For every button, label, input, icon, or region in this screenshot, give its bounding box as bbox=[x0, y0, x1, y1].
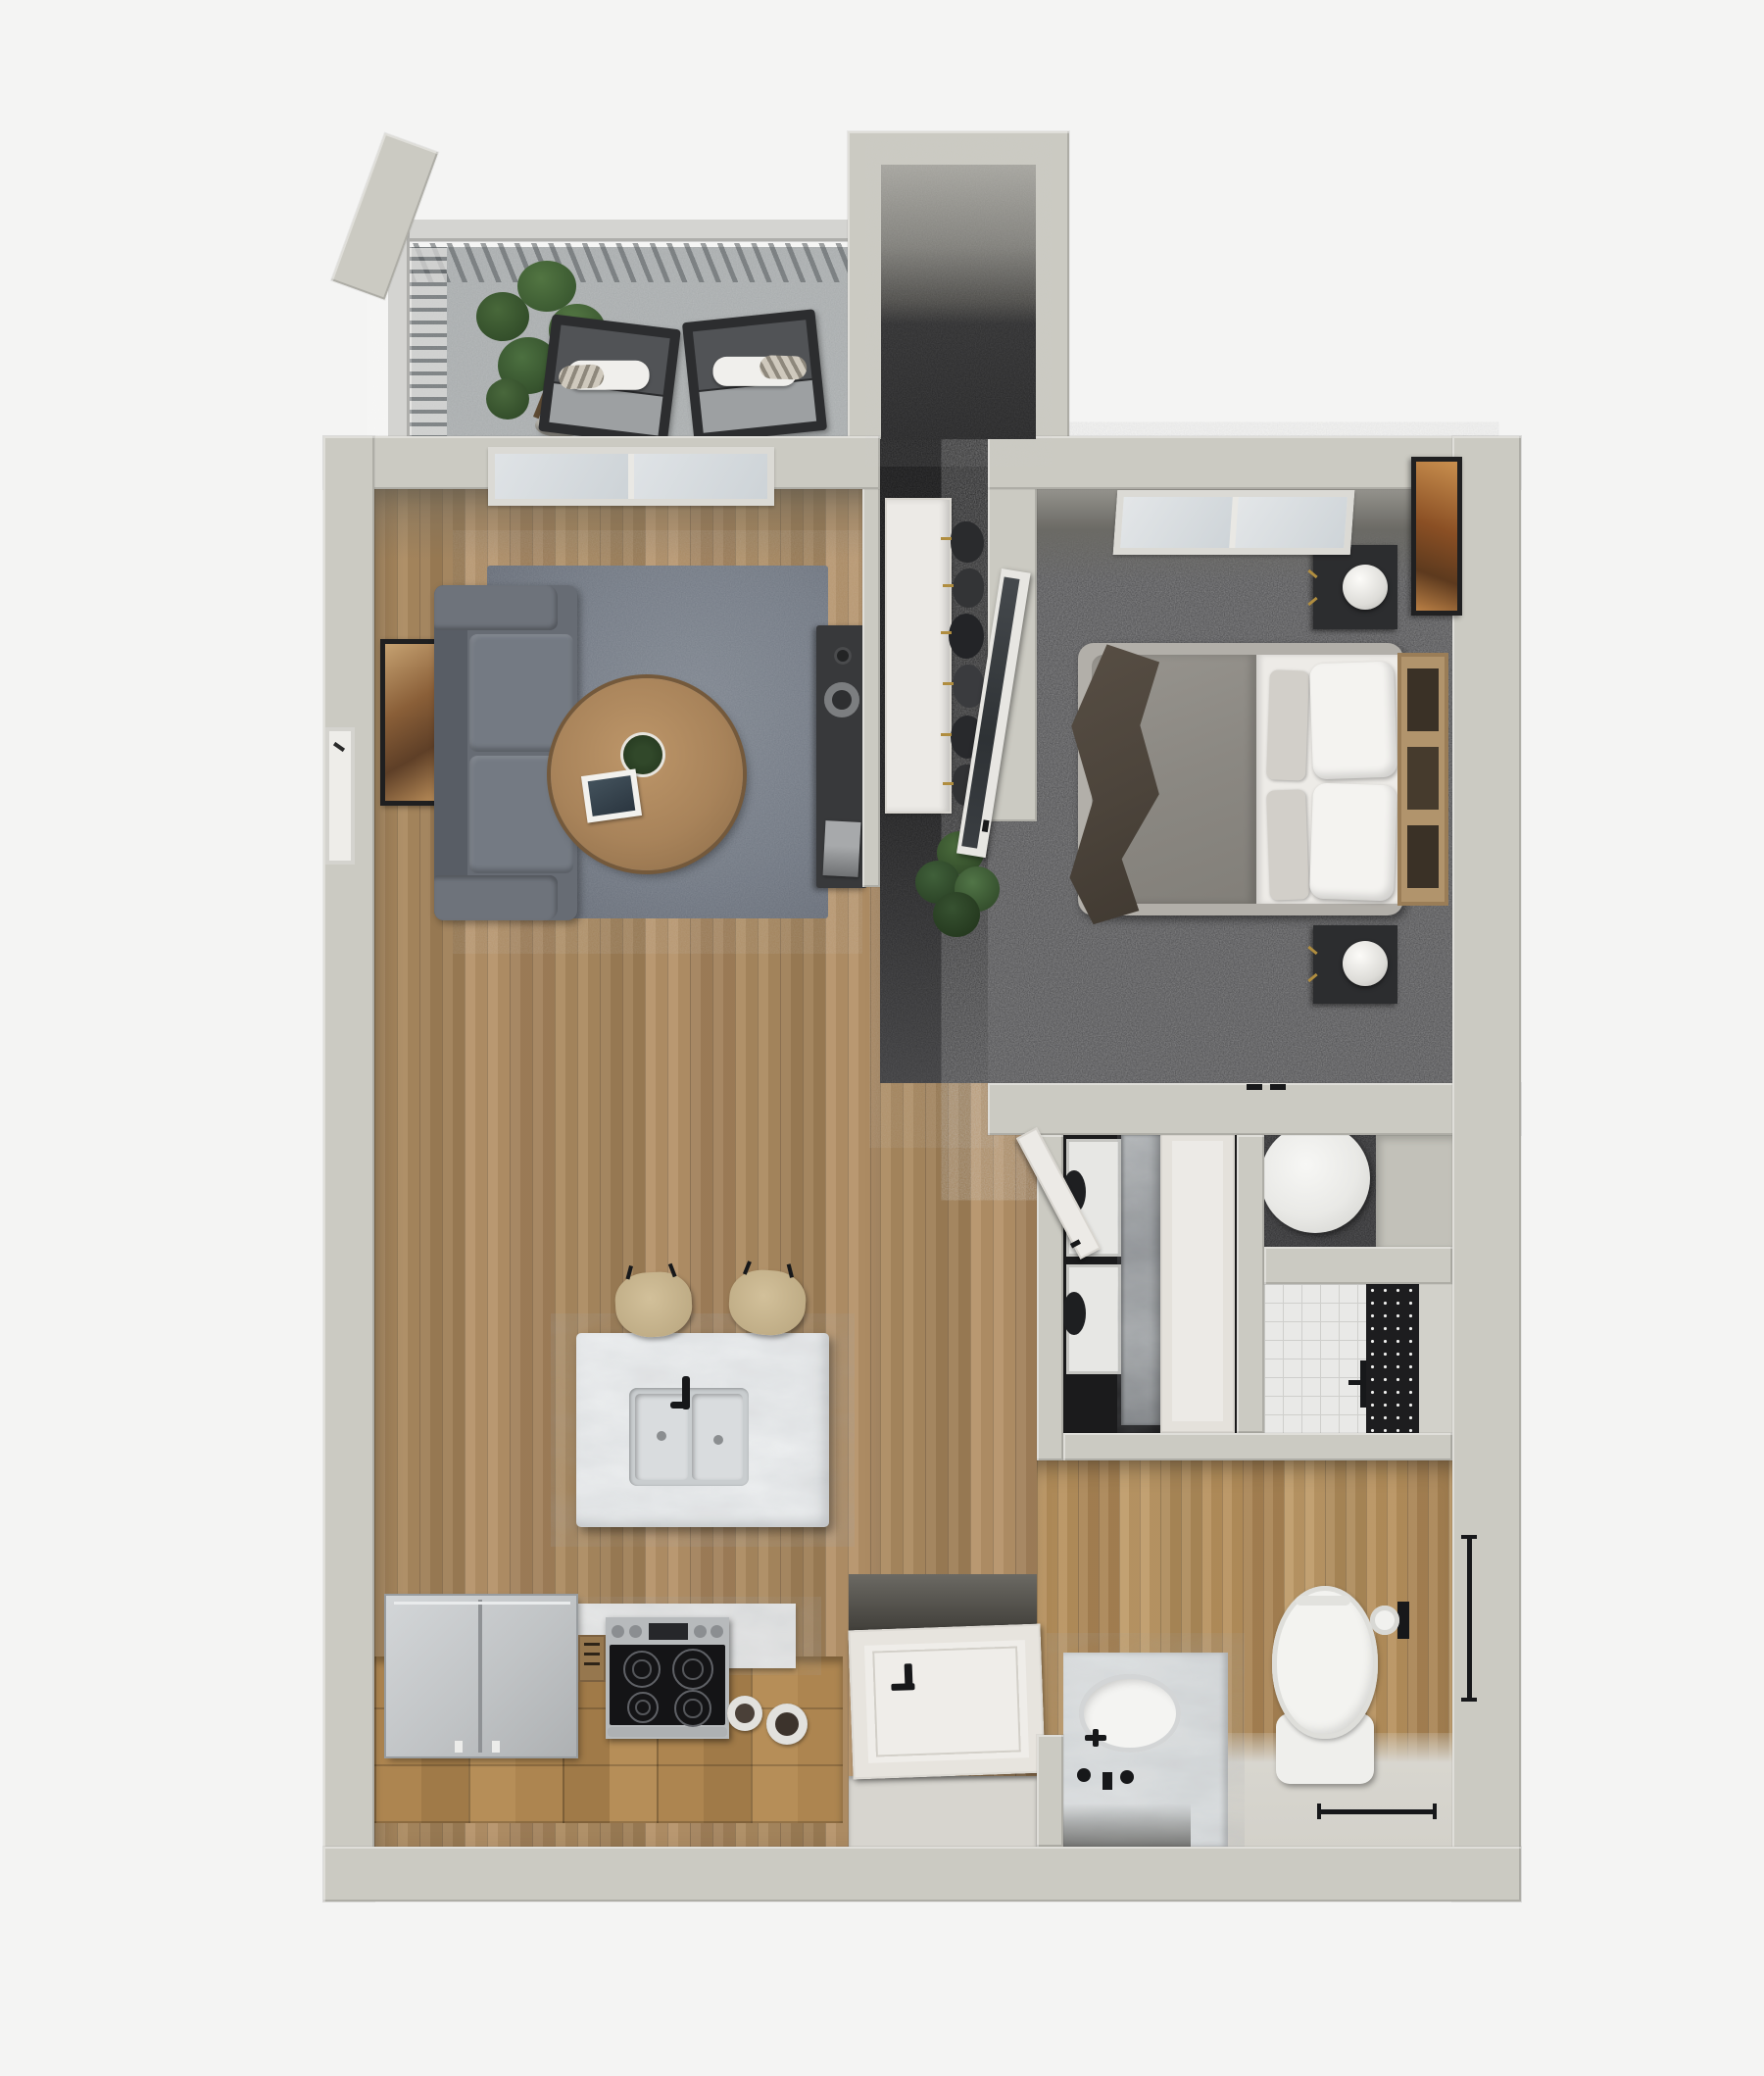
table-plant bbox=[623, 735, 662, 774]
vestibule-interior bbox=[881, 165, 1036, 439]
lounge-chair bbox=[538, 314, 681, 446]
door-stop-marks bbox=[1270, 1084, 1286, 1090]
vanity-faucet bbox=[1093, 1729, 1099, 1747]
wall-below-bedroom bbox=[988, 1083, 1521, 1135]
bathroom-vanity bbox=[1063, 1653, 1228, 1847]
vanity-shadow bbox=[1063, 1804, 1191, 1847]
utility-niche-wall bbox=[1376, 1135, 1452, 1247]
headboard-shelf bbox=[1397, 653, 1448, 906]
sofa-back bbox=[434, 585, 467, 920]
shower-floor bbox=[1264, 1284, 1366, 1433]
bedroom-window bbox=[1113, 490, 1355, 555]
balcony-slats-left bbox=[410, 247, 447, 439]
vanity-accessory bbox=[1102, 1772, 1112, 1790]
console-cup bbox=[834, 647, 852, 665]
dryer bbox=[1066, 1264, 1121, 1374]
stove-display bbox=[649, 1623, 688, 1640]
shower-side-wall bbox=[1419, 1284, 1452, 1433]
lumbar-pillow bbox=[1266, 669, 1309, 780]
entry-door bbox=[848, 1624, 1045, 1780]
left-wall-window bbox=[325, 727, 355, 865]
towel-bar-end bbox=[1461, 1535, 1477, 1539]
stove-knob bbox=[629, 1625, 642, 1638]
towel-bar-vertical bbox=[1467, 1537, 1472, 1700]
towel-bar-horizontal bbox=[1319, 1809, 1435, 1814]
stove-knob bbox=[694, 1625, 707, 1638]
lumbar-pillow bbox=[1266, 789, 1309, 900]
wall-hall-bath-lower bbox=[1037, 1735, 1063, 1847]
knife-block bbox=[578, 1635, 606, 1682]
wall-art-left bbox=[380, 639, 441, 806]
toilet bbox=[1270, 1586, 1380, 1792]
coffee-cup bbox=[727, 1696, 762, 1731]
bed-pillow bbox=[1309, 783, 1397, 902]
entry-doorway-reveal bbox=[849, 1574, 1037, 1631]
kitchen-island bbox=[576, 1333, 829, 1527]
refrigerator bbox=[386, 1596, 576, 1756]
lounge-chair bbox=[682, 309, 827, 444]
outer-wall-right bbox=[1452, 436, 1521, 1902]
hallway-door-handle bbox=[1070, 1239, 1081, 1248]
round-coffee-table bbox=[551, 678, 743, 870]
console-box bbox=[823, 820, 861, 877]
entry-threshold bbox=[849, 1776, 1037, 1847]
water-heater bbox=[1260, 1123, 1370, 1233]
island-faucet-spout bbox=[670, 1402, 690, 1409]
shower-handle bbox=[1348, 1380, 1366, 1385]
laundry-door-panel bbox=[1160, 1129, 1235, 1433]
console-vase bbox=[824, 682, 859, 717]
vanity-accessory bbox=[1120, 1770, 1134, 1784]
wall-art-right bbox=[1411, 457, 1462, 616]
wall-utility-shower bbox=[1264, 1247, 1452, 1284]
sofa-arm bbox=[434, 875, 558, 920]
door-stop-marks bbox=[1247, 1084, 1262, 1090]
towel-bar-end bbox=[1461, 1698, 1477, 1702]
stove-handle bbox=[608, 1727, 727, 1737]
table-lamp bbox=[1343, 941, 1388, 986]
floor-plan-stage bbox=[0, 0, 1764, 2076]
tv-console bbox=[816, 625, 867, 888]
outer-wall-bottom bbox=[323, 1847, 1521, 1902]
toilet-paper-holder bbox=[1370, 1602, 1413, 1639]
stove-cooktop bbox=[610, 1645, 725, 1725]
entry-door-handle-lever bbox=[891, 1683, 914, 1691]
vanity-accessory bbox=[1077, 1768, 1091, 1782]
living-room-window bbox=[488, 447, 774, 506]
stove-knob bbox=[612, 1625, 624, 1638]
toilet-lid bbox=[1272, 1586, 1378, 1739]
range-stove bbox=[606, 1617, 729, 1739]
sofa-arm bbox=[434, 585, 558, 630]
towel-bar-end bbox=[1433, 1804, 1437, 1819]
wall-bathroom-top bbox=[1063, 1433, 1452, 1460]
wall-living-closet bbox=[862, 487, 880, 887]
stove-knob bbox=[710, 1625, 723, 1638]
laundry-counter-marble bbox=[1121, 1135, 1160, 1425]
towel-bar-end bbox=[1317, 1804, 1321, 1819]
shower-tile-wall bbox=[1366, 1284, 1419, 1433]
bed-pillow bbox=[1309, 662, 1397, 780]
chair-pillow-pattern bbox=[759, 355, 808, 380]
coffee-cup bbox=[766, 1704, 808, 1745]
balcony-railing-top bbox=[388, 220, 849, 241]
table-lamp bbox=[1343, 565, 1388, 610]
sofa-cushion bbox=[469, 634, 573, 752]
chair-pillow-pattern bbox=[559, 364, 605, 389]
wall-laundry-utility bbox=[1237, 1135, 1264, 1433]
outer-wall-left bbox=[323, 436, 374, 1902]
